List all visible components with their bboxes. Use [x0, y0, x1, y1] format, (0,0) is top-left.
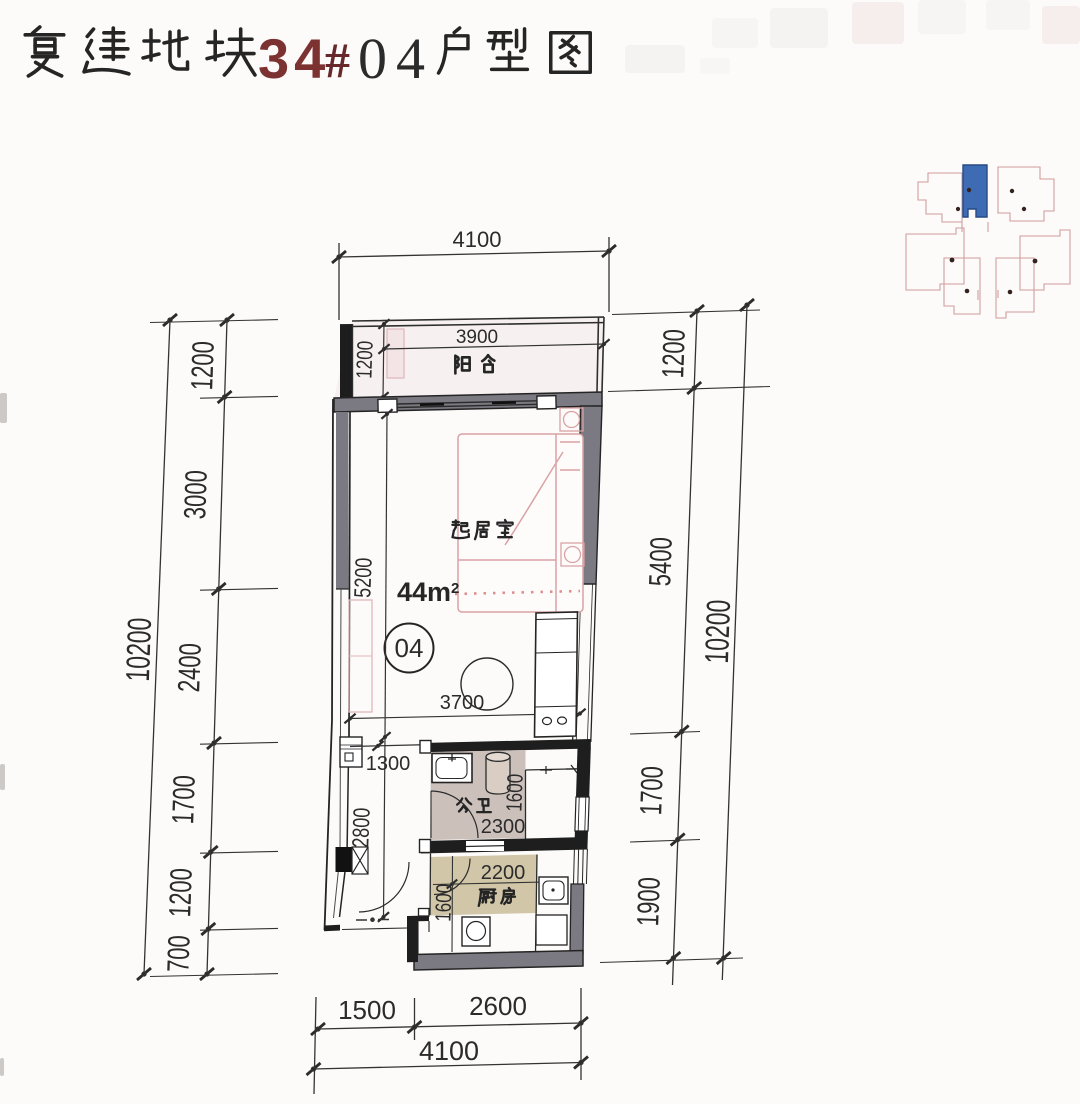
- svg-text:1600: 1600: [502, 773, 528, 812]
- svg-text:04: 04: [395, 633, 424, 663]
- svg-text:2400: 2400: [172, 643, 208, 693]
- svg-text:1200: 1200: [352, 340, 378, 379]
- svg-text:1200: 1200: [163, 868, 199, 918]
- svg-text:5400: 5400: [643, 537, 679, 587]
- svg-text:04: 04: [358, 26, 434, 91]
- svg-text:4100: 4100: [419, 1036, 479, 1066]
- svg-text:44m2: 44m2: [397, 577, 459, 607]
- svg-text:3900: 3900: [456, 327, 498, 348]
- svg-text:3000: 3000: [178, 470, 214, 520]
- svg-text:1500: 1500: [338, 995, 396, 1025]
- svg-text:1900: 1900: [631, 877, 667, 927]
- svg-text:1700: 1700: [166, 775, 202, 825]
- svg-text:700: 700: [161, 935, 197, 973]
- svg-text:3700: 3700: [440, 692, 485, 714]
- svg-text:5200: 5200: [350, 557, 377, 598]
- svg-text:1200: 1200: [656, 329, 692, 379]
- svg-text:2800: 2800: [348, 807, 375, 848]
- svg-text:4100: 4100: [453, 227, 502, 252]
- svg-text:10200: 10200: [120, 617, 159, 682]
- svg-text:2600: 2600: [469, 991, 527, 1021]
- svg-text:10200: 10200: [699, 599, 738, 664]
- svg-text:#: #: [325, 32, 350, 88]
- svg-text:1300: 1300: [366, 753, 411, 775]
- svg-text:1600: 1600: [431, 883, 457, 922]
- svg-text:2200: 2200: [481, 862, 526, 884]
- svg-text:34: 34: [258, 27, 330, 90]
- svg-text:1200: 1200: [185, 341, 221, 391]
- svg-text:1700: 1700: [634, 766, 670, 816]
- svg-text:2300: 2300: [481, 816, 526, 838]
